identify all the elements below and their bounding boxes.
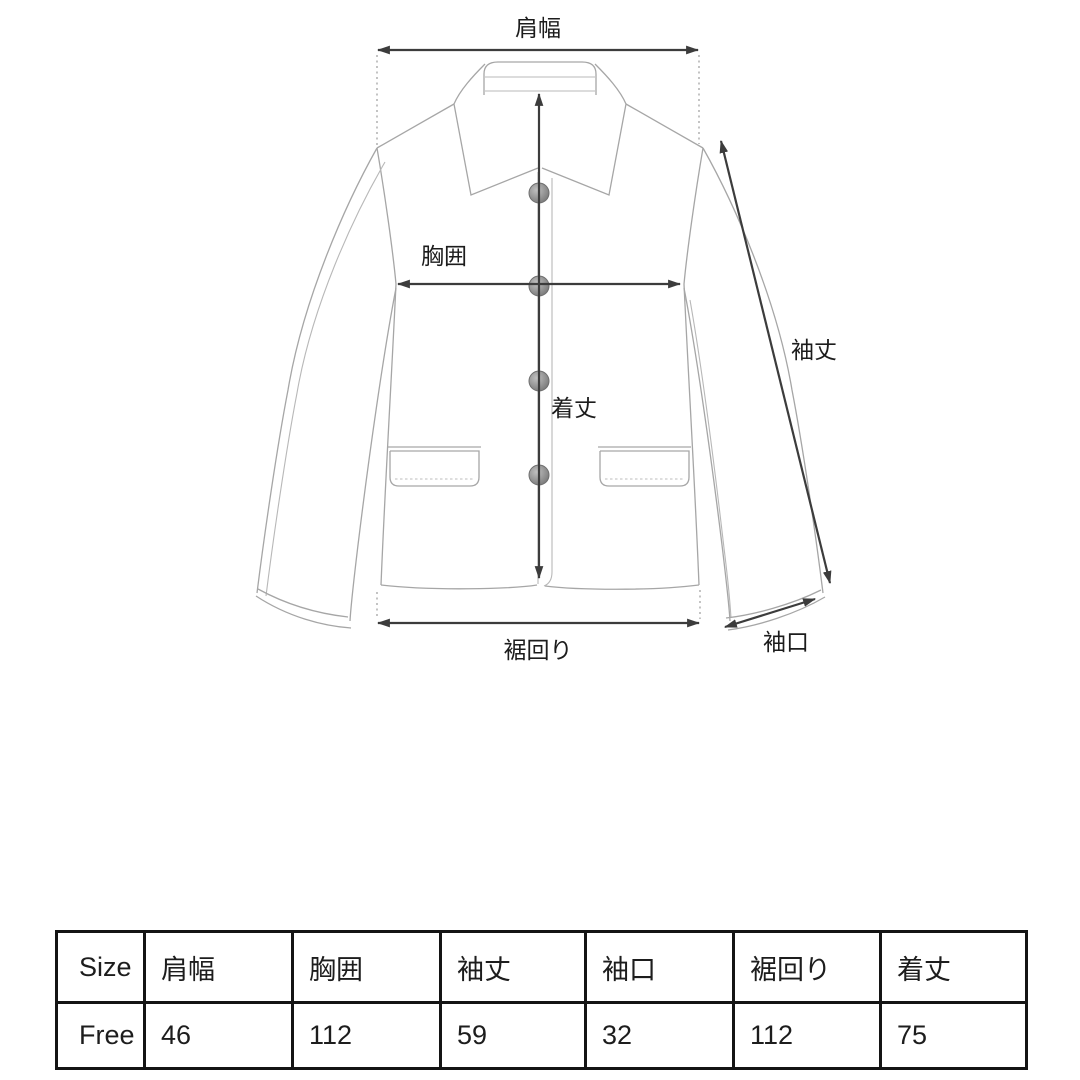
col-header-size: Size: [57, 932, 145, 1003]
col-header-chest: 胸囲: [293, 932, 441, 1003]
body-length-label: 着丈: [551, 396, 597, 422]
collar-right-leaf: [542, 64, 626, 195]
collar-band: [484, 62, 596, 95]
measurement-arrows: 肩幅 胸囲 着丈 袖丈 裾回り: [377, 16, 837, 664]
cell-sleeve-length: 59: [441, 1003, 586, 1069]
size-guide-page: 肩幅 胸囲 着丈 袖丈 裾回り: [0, 0, 1080, 1080]
hem-width-measure: 裾回り: [377, 590, 700, 664]
left-sleeve-seam: [266, 162, 385, 596]
size-table-header-row: Size 肩幅 胸囲 袖丈 袖口 裾回り 着丈: [57, 932, 1027, 1003]
cuff-label: 袖口: [763, 630, 809, 656]
col-header-body-length: 着丈: [881, 932, 1027, 1003]
body-length-measure: 着丈: [539, 94, 597, 578]
body-left-side: [377, 148, 396, 585]
cell-chest: 112: [293, 1003, 441, 1069]
hem-width-label: 裾回り: [504, 638, 573, 664]
col-header-cuff: 袖口: [586, 932, 734, 1003]
jacket-measurement-diagram: 肩幅 胸囲 着丈 袖丈 裾回り: [0, 0, 1080, 700]
sleeve-length-label: 袖丈: [791, 338, 837, 364]
cuff-measure: 袖口: [725, 599, 815, 656]
size-table-data-row: Free 46 112 59 32 112 75: [57, 1003, 1027, 1069]
hem-line: [381, 585, 537, 589]
left-cuff: [258, 589, 348, 617]
cell-shoulder-width: 46: [145, 1003, 293, 1069]
sleeve-length-measure: 袖丈: [721, 141, 837, 583]
col-header-hem-width: 裾回り: [734, 932, 881, 1003]
cell-size-name: Free: [57, 1003, 145, 1069]
right-pocket: [598, 447, 691, 486]
right-cuff: [726, 590, 821, 618]
shoulder-width-label: 肩幅: [515, 16, 561, 42]
chest-label: 胸囲: [421, 244, 467, 270]
size-table: Size 肩幅 胸囲 袖丈 袖口 裾回り 着丈 Free 46 112 59 3…: [55, 930, 1028, 1070]
jacket-outline: [256, 62, 825, 630]
left-pocket: [388, 447, 481, 486]
collar-left-leaf: [454, 64, 538, 195]
cell-hem-width: 112: [734, 1003, 881, 1069]
cell-cuff: 32: [586, 1003, 734, 1069]
col-header-sleeve-length: 袖丈: [441, 932, 586, 1003]
right-sleeve-inner: [684, 288, 730, 621]
cell-body-length: 75: [881, 1003, 1027, 1069]
col-header-shoulder-width: 肩幅: [145, 932, 293, 1003]
left-sleeve-inner: [350, 288, 396, 621]
